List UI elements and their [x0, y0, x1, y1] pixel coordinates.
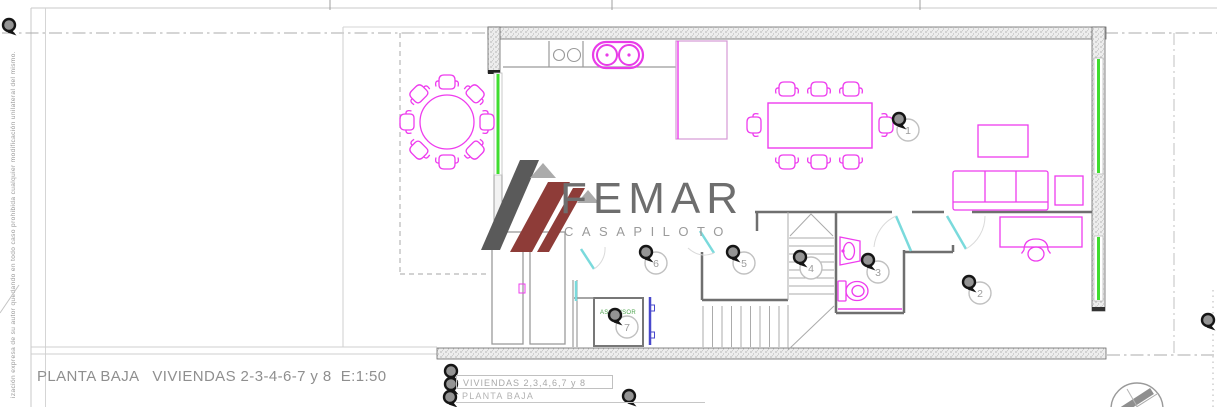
- svg-text:3: 3: [875, 267, 881, 279]
- north-symbol: [1111, 383, 1163, 407]
- legend-floor: PLANTA BAJA: [456, 389, 705, 403]
- svg-text:2: 2: [977, 288, 983, 300]
- parcel-boundary: [31, 27, 488, 354]
- stairs-lower: [703, 305, 834, 350]
- legend-dwellings: VIVIENDAS 2,3,4,6,7 y 8: [456, 375, 613, 389]
- desk-set: [1000, 217, 1082, 261]
- femar-logo: FEMAR CASAPILOTO: [480, 155, 780, 260]
- svg-text:7: 7: [624, 322, 630, 334]
- svg-text:1: 1: [905, 125, 911, 137]
- logo-tagline-text: CASAPILOTO: [564, 225, 732, 238]
- legend: VIVIENDAS 2,3,4,6,7 y 8 PLANTA BAJA: [456, 375, 716, 403]
- cad-sheet: ización expresa de su autor quedando en …: [0, 0, 1217, 407]
- sofa-set: [953, 125, 1083, 210]
- plan-title: PLANTA BAJA VIVIENDAS 2-3-4-6-7 y 8 E:1:…: [37, 368, 387, 385]
- logo-brand-text: FEMAR: [560, 177, 744, 221]
- svg-text:4: 4: [808, 263, 814, 275]
- patio-boundary: [400, 33, 488, 274]
- map-pin-icon[interactable]: [1202, 314, 1216, 331]
- kitchen-counter: [503, 41, 727, 139]
